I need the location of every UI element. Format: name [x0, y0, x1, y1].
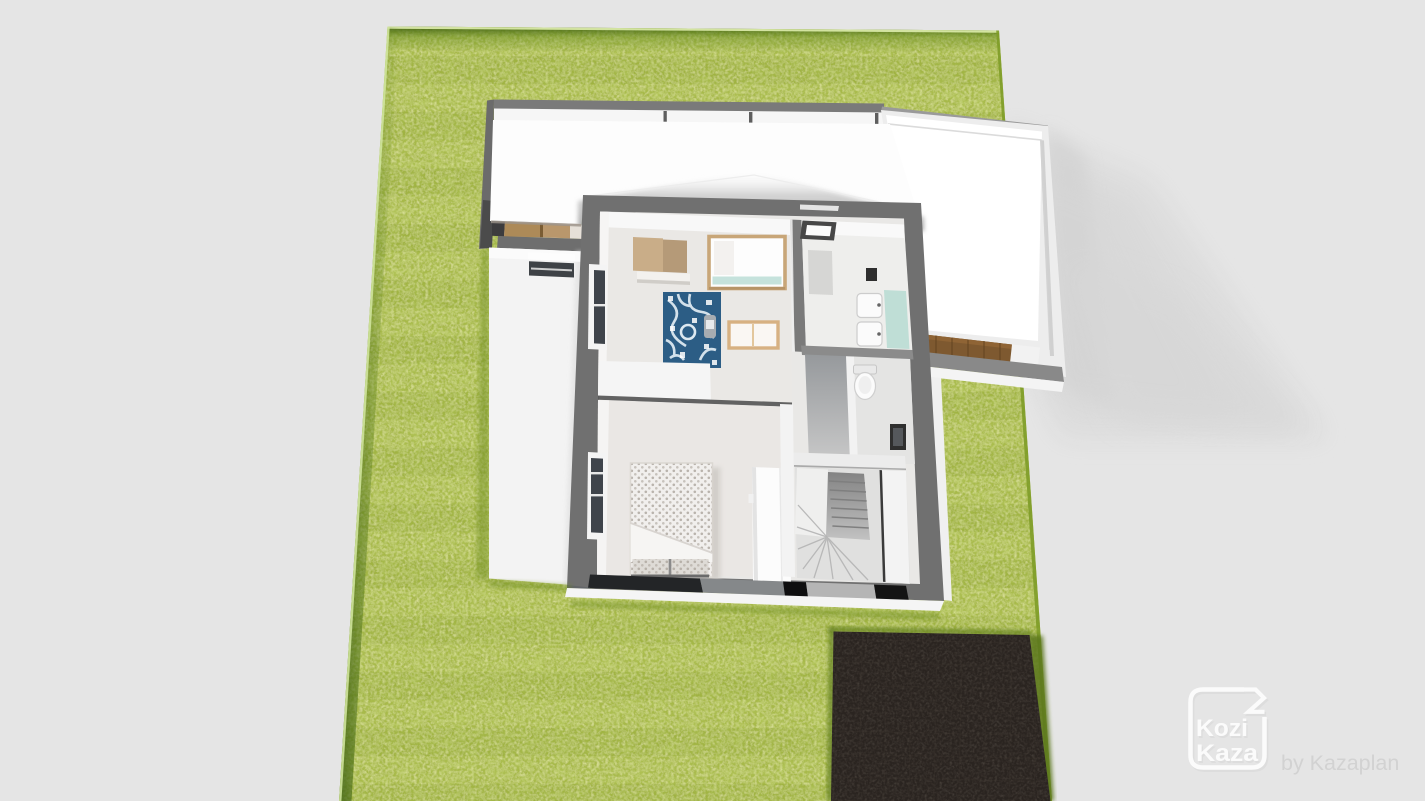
- svg-text:Kaza: Kaza: [1196, 740, 1258, 767]
- svg-text:by Kazaplan: by Kazaplan: [1281, 751, 1399, 775]
- svg-text:Kozi: Kozi: [1196, 715, 1248, 742]
